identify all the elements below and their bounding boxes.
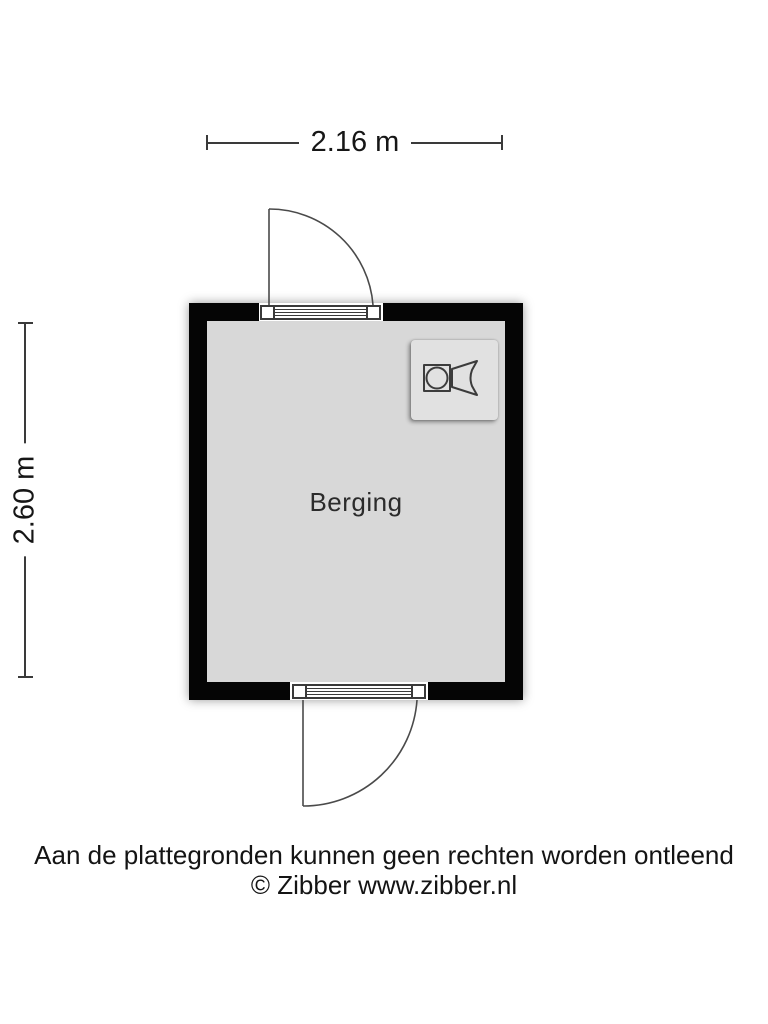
disclaimer-text: Aan de plattegronden kunnen geen rechten… [0, 840, 768, 870]
credit-text: © Zibber www.zibber.nl [0, 870, 768, 900]
washing-machine-fixture [411, 340, 498, 420]
footer: Aan de plattegronden kunnen geen rechten… [0, 840, 768, 900]
door-sill-bottom [292, 684, 426, 699]
door-sill-top [260, 305, 381, 320]
door-jamb-right [366, 307, 368, 318]
room-name-label: Berging [207, 487, 505, 518]
height-dimension-tick-top [18, 322, 33, 324]
washing-machine-icon [411, 340, 498, 420]
height-dimension-label: 2.60 m [9, 444, 42, 557]
door-jamb-right [411, 686, 413, 697]
floorplan-canvas: 2.16 m 2.60 m [0, 0, 768, 1024]
door-arc-top [269, 209, 373, 305]
width-dimension-label: 2.16 m [207, 126, 503, 159]
height-dimension-tick-bottom [18, 676, 33, 678]
door-arc-bottom [303, 700, 417, 806]
